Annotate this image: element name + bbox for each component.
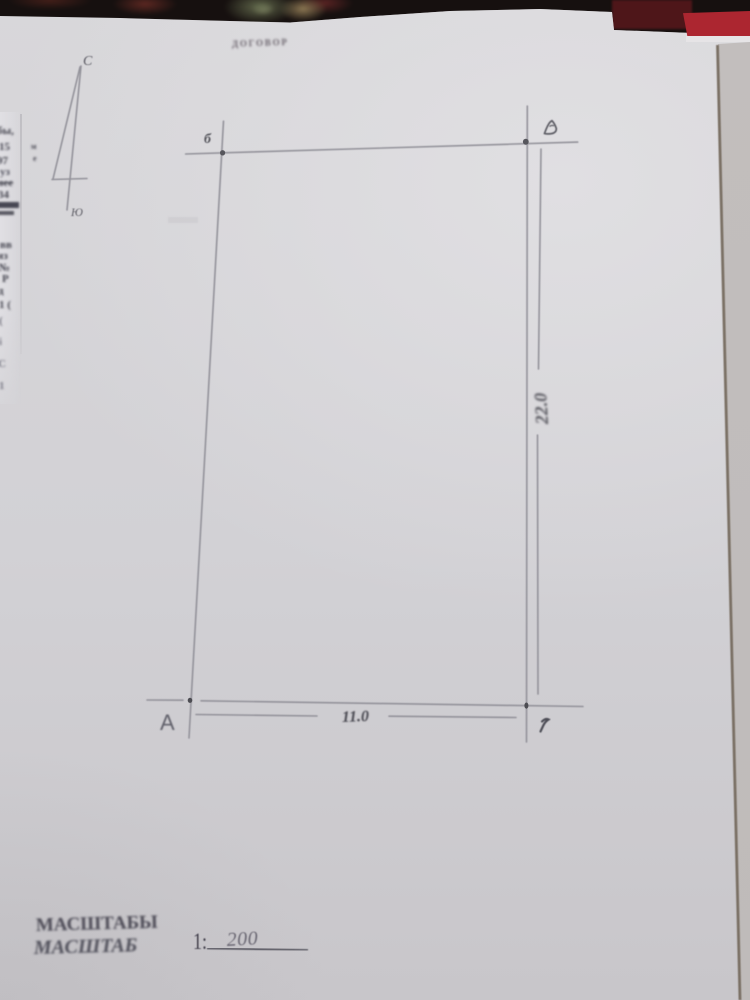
- svg-text:11.0: 11.0: [342, 708, 370, 726]
- svg-text:Ю: Ю: [70, 207, 83, 219]
- svg-text:200: 200: [226, 927, 258, 951]
- svg-text:е: е: [33, 154, 37, 163]
- svg-text:МАСШТАБ: МАСШТАБ: [33, 934, 138, 959]
- svg-text:м: м: [31, 142, 37, 151]
- svg-text:15: 15: [0, 141, 11, 153]
- svg-text:МАСШТАБЫ: МАСШТАБЫ: [36, 912, 159, 936]
- svg-text:С: С: [0, 358, 6, 370]
- svg-text:34: 34: [0, 189, 10, 201]
- svg-text:1 (: 1 (: [0, 299, 11, 311]
- svg-text:1:: 1:: [193, 929, 207, 954]
- svg-text:из: из: [0, 250, 8, 262]
- svg-text:A: A: [160, 710, 175, 735]
- svg-text:ДОГОВОР: ДОГОВОР: [232, 37, 289, 49]
- svg-text:б: б: [204, 132, 212, 147]
- svg-text:(: (: [0, 315, 3, 327]
- svg-text:C: C: [83, 54, 93, 69]
- svg-text:бы,: бы,: [0, 125, 14, 137]
- svg-text:i: i: [0, 336, 2, 348]
- svg-text:22.0: 22.0: [530, 392, 552, 426]
- svg-text:1: 1: [0, 380, 5, 392]
- svg-text:нее: нее: [0, 177, 13, 189]
- svg-text:Р: Р: [2, 273, 9, 285]
- svg-text:д: д: [0, 285, 4, 297]
